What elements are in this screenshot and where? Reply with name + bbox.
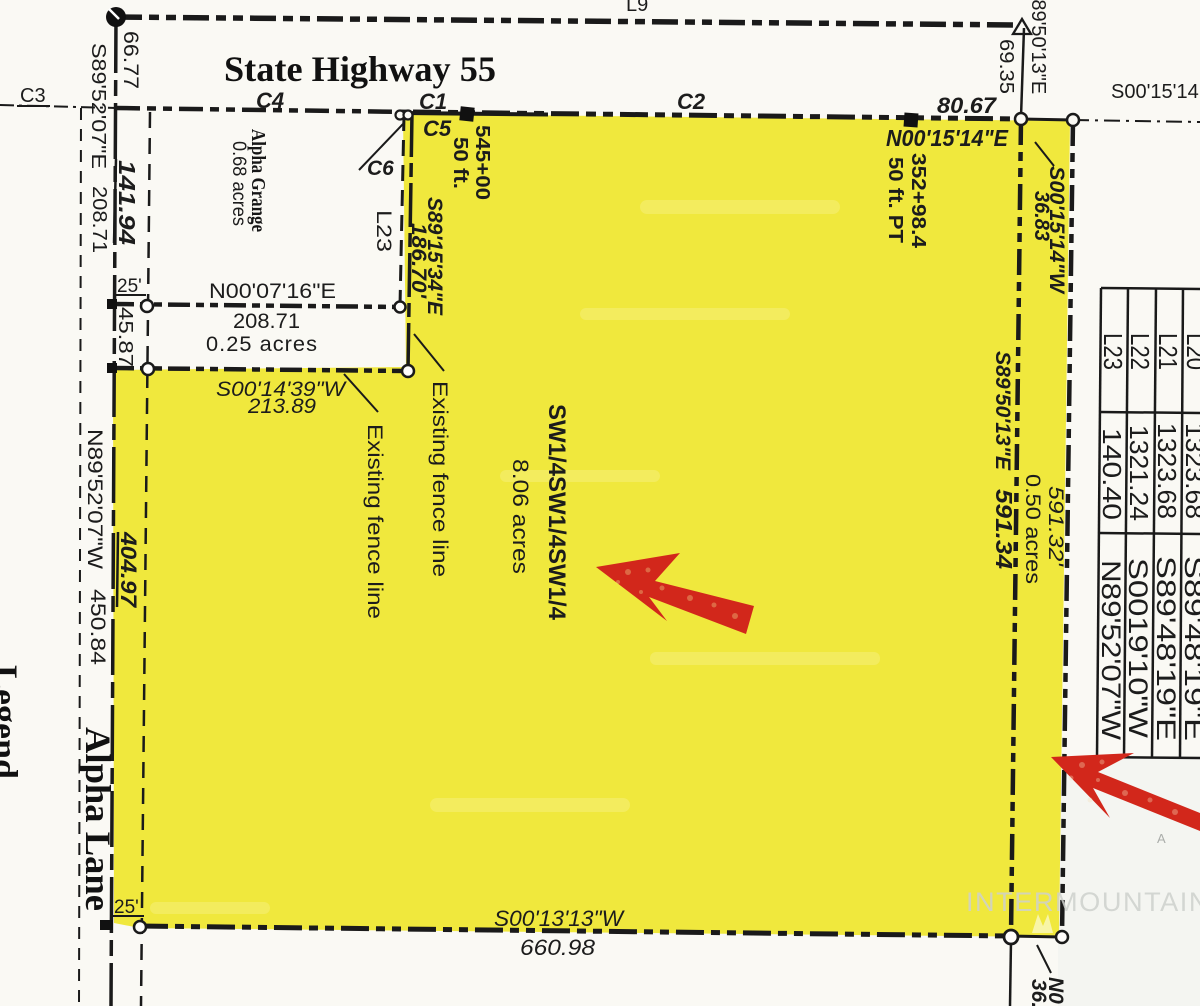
svg-text:80.67: 80.67	[937, 93, 998, 118]
svg-text:50 ft.: 50 ft.	[449, 137, 471, 189]
svg-text:S00'13'13"W: S00'13'13"W	[494, 906, 625, 931]
svg-text:0.68 acres: 0.68 acres	[228, 141, 249, 226]
svg-text:213.89: 213.89	[247, 395, 316, 418]
svg-text:591.32': 591.32'	[1044, 486, 1067, 567]
svg-text:Legend: Legend	[0, 665, 25, 779]
svg-text:352+98.4: 352+98.4	[907, 153, 929, 249]
svg-text:C1: C1	[419, 89, 447, 114]
svg-text:404.97: 404.97	[116, 531, 141, 609]
svg-text:State Highway 55: State Highway 55	[224, 49, 496, 89]
svg-text:S89'50'13"E: S89'50'13"E	[991, 351, 1014, 471]
svg-text:1323.68: 1323.68	[1152, 423, 1182, 519]
svg-text:L9: L9	[626, 0, 648, 16]
svg-text:S89'48'19"E: S89'48'19"E	[1151, 556, 1181, 741]
svg-text:INTERMOUNTAIN: INTERMOUNTAIN	[966, 887, 1200, 917]
svg-text:591.34: 591.34	[991, 489, 1017, 569]
svg-text:N89'52'07"W: N89'52'07"W	[1096, 560, 1126, 741]
svg-text:N00'07'16"E: N00'07'16"E	[209, 280, 336, 303]
svg-text:L21: L21	[1153, 333, 1183, 370]
svg-text:450.84: 450.84	[86, 589, 109, 665]
svg-text:8.06 acres: 8.06 acres	[508, 459, 533, 574]
svg-text:L20: L20	[1181, 333, 1200, 370]
svg-text:L23: L23	[372, 210, 395, 252]
svg-text:36.83: 36.83	[1030, 191, 1053, 241]
svg-text:69.35: 69.35	[995, 39, 1017, 94]
svg-text:Alpha Grange: Alpha Grange	[247, 129, 269, 232]
svg-text:L23: L23	[1098, 333, 1128, 370]
svg-text:N89'52'07"W: N89'52'07"W	[83, 429, 106, 569]
svg-text:C3: C3	[20, 85, 46, 107]
svg-text:208.71: 208.71	[88, 186, 110, 253]
svg-text:66.77: 66.77	[119, 31, 142, 89]
svg-text:SW1/4SW1/4SW1/4: SW1/4SW1/4SW1/4	[543, 404, 570, 621]
svg-text:36.: 36.	[1027, 979, 1050, 1006]
svg-text:141.94: 141.94	[114, 160, 140, 245]
svg-text:C6: C6	[367, 157, 394, 180]
svg-text:0.50 acres: 0.50 acres	[1021, 474, 1044, 584]
svg-text:Existing fence line: Existing fence line	[363, 424, 386, 619]
svg-text:L22: L22	[1125, 333, 1155, 370]
svg-text:S00'15'14: S00'15'14	[1111, 81, 1199, 103]
svg-text:C5: C5	[423, 116, 452, 141]
svg-text:Alpha Lane: Alpha Lane	[78, 727, 118, 911]
svg-text:C4: C4	[256, 88, 284, 113]
svg-text:Existing fence line: Existing fence line	[428, 381, 451, 577]
svg-text:S89'52'07"E: S89'52'07"E	[87, 43, 109, 169]
svg-text:25': 25'	[117, 276, 142, 297]
svg-text:C2: C2	[677, 89, 706, 114]
svg-text:545+00: 545+00	[471, 125, 493, 200]
svg-text:186.70': 186.70'	[407, 223, 430, 299]
svg-text:140.40: 140.40	[1097, 428, 1127, 520]
svg-text:45.87: 45.87	[114, 307, 136, 367]
svg-text:S89'48'19"E: S89'48'19"E	[1179, 556, 1200, 741]
svg-text:N00'15'14"E: N00'15'14"E	[886, 125, 1009, 151]
svg-text:660.98: 660.98	[520, 935, 596, 960]
svg-text:50 ft. PT: 50 ft. PT	[884, 157, 906, 243]
svg-text:S0019'10"W: S0019'10"W	[1123, 558, 1153, 739]
svg-text:1323.68: 1323.68	[1180, 423, 1200, 519]
svg-text:208.71: 208.71	[233, 310, 300, 333]
svg-text:A: A	[1157, 831, 1166, 846]
svg-text:0.25 acres: 0.25 acres	[206, 333, 318, 356]
svg-text:1321.24: 1321.24	[1124, 425, 1154, 521]
svg-text:S89'50'13"E: S89'50'13"E	[1027, 0, 1049, 94]
